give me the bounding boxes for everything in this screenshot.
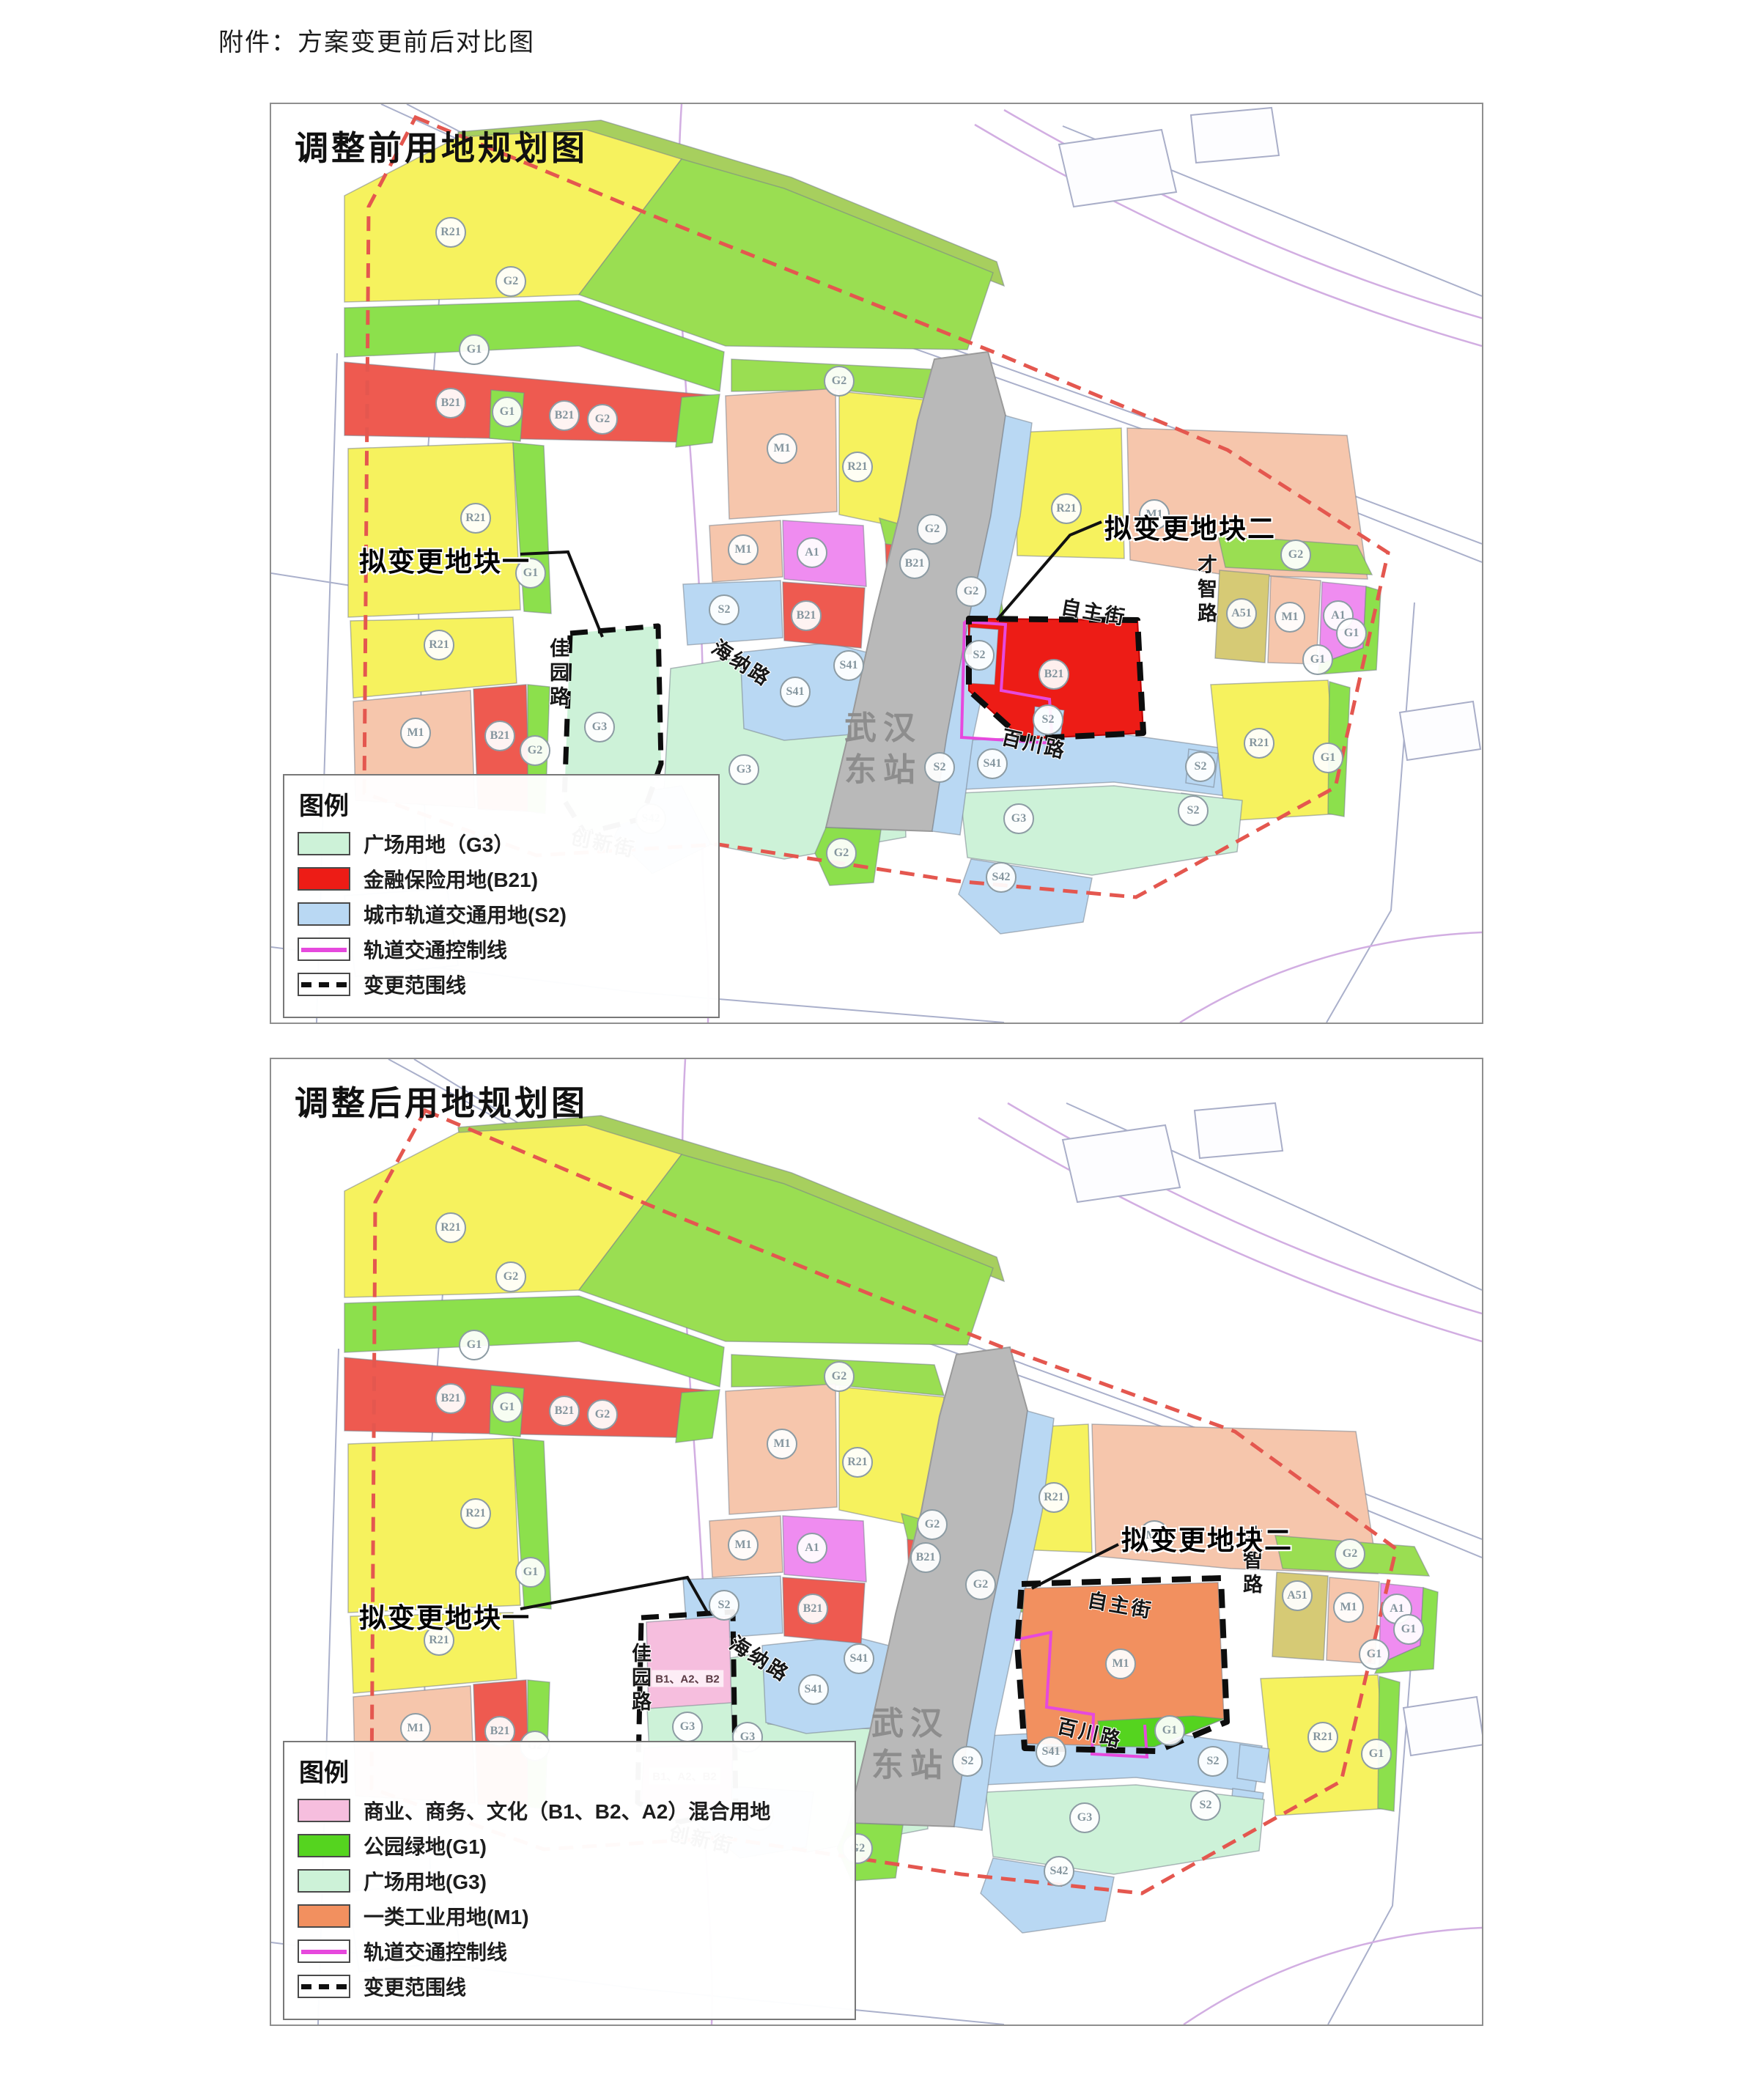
zone-label-S41: S41 — [833, 650, 864, 681]
zone-label-R21: R21 — [1038, 1482, 1069, 1513]
legend-item-label: 轨道交通控制线 — [364, 935, 507, 964]
zone-label-S2: S2 — [709, 594, 739, 625]
zone-label-B21: B21 — [797, 1594, 828, 1624]
zone-label-G2: G2 — [1335, 1539, 1365, 1569]
legend-item: 商业、商务、文化（B1、B2、A2）混合用地 — [298, 1796, 841, 1825]
zone-label-G1: G1 — [492, 397, 523, 427]
zone-label-M1: M1 — [767, 433, 797, 464]
zone-label-R21: R21 — [1307, 1722, 1338, 1753]
zone-label-B21: B21 — [910, 1542, 941, 1573]
zone-label-M1: M1 — [728, 1530, 759, 1561]
zone-label-G3: G3 — [672, 1712, 703, 1742]
zone-label-B21: B21 — [435, 388, 466, 419]
zone-label-G2: G2 — [587, 404, 618, 435]
zone-label-G2: G2 — [495, 1261, 526, 1292]
legend-swatch-fill — [298, 1834, 350, 1857]
zone-label-G2: G2 — [1280, 539, 1311, 570]
zone-label-B21: B21 — [549, 400, 580, 431]
zone-label-B21: B21 — [899, 548, 930, 579]
zone-label-S2: S2 — [709, 1590, 739, 1621]
zone-label-G2: G2 — [917, 514, 948, 545]
legend-item-label: 轨道交通控制线 — [364, 1937, 507, 1966]
map-after-title: 调整后用地规划图 — [295, 1077, 588, 1125]
legend-item: 广场用地（G3） — [298, 829, 705, 858]
callout-拟变更地块二: 拟变更地块二 — [1104, 506, 1276, 546]
zone-label-G1: G1 — [1336, 618, 1367, 649]
zone-label-G2: G2 — [826, 838, 857, 869]
zone-label-G1: G1 — [1393, 1614, 1424, 1645]
legend-item-label: 一类工业用地(M1) — [364, 1901, 529, 1931]
legend-swatch-dash — [298, 1975, 350, 1998]
legend-item-label: 城市轨道交通用地(S2) — [364, 899, 567, 929]
zone-label-A1: A1 — [797, 1533, 827, 1563]
zone-label-S41: S41 — [1036, 1736, 1066, 1767]
zone-label-G1: G1 — [1359, 1639, 1390, 1670]
road-label-佳园路: 佳园路 — [626, 1643, 654, 1715]
zone-label-S42: S42 — [1044, 1856, 1074, 1887]
zone-label-R21: R21 — [435, 1212, 466, 1243]
zone-label-G2: G2 — [824, 366, 855, 397]
zone-label-S42: S42 — [986, 862, 1017, 893]
zone-label-A51: A51 — [1282, 1580, 1313, 1611]
zone-label-G2: G2 — [917, 1509, 948, 1540]
zone-label-M1: M1 — [767, 1429, 797, 1459]
zone-label-G1: G1 — [459, 1330, 490, 1360]
zone-label-R21: R21 — [435, 217, 466, 248]
zone-label-S41: S41 — [977, 748, 1008, 779]
zone-label-B21: B21 — [435, 1383, 466, 1414]
zone-label-B21: B21 — [1038, 659, 1069, 690]
zone-label-A1: A1 — [797, 537, 827, 568]
zone-label-G2: G2 — [587, 1399, 618, 1430]
station-label: 武汉 东站 — [871, 1703, 949, 1786]
legend-items: 商业、商务、文化（B1、B2、A2）混合用地公园绿地(G1)广场用地(G3)一类… — [298, 1796, 841, 2001]
zone-label-R21: R21 — [1051, 493, 1082, 524]
legend-item: 变更范围线 — [298, 1972, 841, 2001]
mixed-use-tag-B1、A2、B2: B1、A2、B2 — [652, 1670, 723, 1687]
legend-item: 轨道交通控制线 — [298, 935, 705, 964]
legend-item-label: 金融保险用地(B21) — [364, 864, 538, 894]
zone-label-S41: S41 — [798, 1674, 829, 1705]
zone-label-G3: G3 — [584, 712, 615, 743]
zone-label-G1: G1 — [515, 1557, 546, 1588]
zone-label-S2: S2 — [924, 752, 955, 783]
zone-label-G2: G2 — [965, 1569, 996, 1600]
legend-item-label: 广场用地(G3) — [364, 1866, 487, 1895]
legend-item: 金融保险用地(B21) — [298, 864, 705, 894]
legend-title: 图例 — [299, 1753, 841, 1788]
zone-label-S2: S2 — [1185, 751, 1216, 782]
zone-label-G2: G2 — [495, 266, 526, 297]
legend-item-label: 变更范围线 — [364, 1972, 466, 2001]
zone-label-B21: B21 — [549, 1396, 580, 1426]
zone-label-R21: R21 — [842, 452, 873, 482]
legend-swatch-fill — [298, 1869, 350, 1893]
zone-label-R21: R21 — [460, 503, 491, 534]
legend-swatch-fill — [298, 902, 350, 926]
road-label-才智路: 才智路 — [1192, 554, 1220, 627]
legend-item: 城市轨道交通用地(S2) — [298, 899, 705, 929]
legend-item-label: 公园绿地(G1) — [364, 1831, 487, 1860]
legend-item: 广场用地(G3) — [298, 1866, 841, 1895]
map-before-title: 调整前用地规划图 — [295, 122, 588, 170]
legend-swatch-line — [298, 937, 350, 961]
zone-label-M1: M1 — [728, 534, 759, 565]
zone-label-G1: G1 — [459, 334, 490, 365]
zone-label-S2: S2 — [952, 1746, 983, 1777]
legend-swatch-line — [298, 1939, 350, 1963]
legend-swatch-dash — [298, 973, 350, 996]
station-label: 武汉 东站 — [844, 707, 922, 791]
zone-label-G1: G1 — [1154, 1715, 1185, 1746]
zone-label-G1: G1 — [492, 1392, 523, 1423]
legend-item: 变更范围线 — [298, 970, 705, 999]
zone-label-G3: G3 — [1069, 1802, 1100, 1833]
legend-before: 图例 广场用地（G3）金融保险用地(B21)城市轨道交通用地(S2)轨道交通控制… — [283, 774, 720, 1018]
zone-label-G1: G1 — [1313, 743, 1343, 773]
legend-swatch-fill — [298, 1904, 350, 1928]
zone-label-R21: R21 — [842, 1447, 873, 1478]
map-before: 调整前用地规划图 武汉 东站 R21G2G1B21G1B21G2R21G1R21… — [270, 103, 1483, 1024]
zone-label-M1: M1 — [400, 718, 431, 748]
callout-拟变更地块一: 拟变更地块一 — [359, 539, 531, 579]
callout-拟变更地块二: 拟变更地块二 — [1121, 1518, 1293, 1558]
road-label-佳园路: 佳园路 — [544, 638, 572, 710]
zone-label-S41: S41 — [844, 1643, 874, 1674]
zone-label-S2: S2 — [1178, 795, 1209, 826]
zone-label-S2: S2 — [1190, 1790, 1221, 1821]
legend-item: 一类工业用地(M1) — [298, 1901, 841, 1931]
legend-swatch-fill — [298, 867, 350, 891]
legend-item-label: 广场用地（G3） — [364, 829, 514, 858]
legend-items: 广场用地（G3）金融保险用地(B21)城市轨道交通用地(S2)轨道交通控制线变更… — [298, 829, 705, 999]
zone-label-G2: G2 — [824, 1361, 855, 1392]
legend-item-label: 变更范围线 — [364, 970, 466, 999]
zone-label-B21: B21 — [484, 721, 515, 751]
zone-label-M1: M1 — [1274, 602, 1305, 633]
legend-item-label: 商业、商务、文化（B1、B2、A2）混合用地 — [364, 1796, 770, 1825]
zone-label-S2: S2 — [1198, 1746, 1228, 1777]
zone-label-G2: G2 — [956, 576, 986, 607]
legend-item: 轨道交通控制线 — [298, 1937, 841, 1966]
zone-label-R21: R21 — [460, 1498, 491, 1529]
map-after: 调整后用地规划图 武汉 东站 R21G2G1B21G1B21G2R21G1R21… — [270, 1058, 1483, 2026]
zone-label-G1: G1 — [1302, 644, 1333, 675]
legend-after: 图例 商业、商务、文化（B1、B2、A2）混合用地公园绿地(G1)广场用地(G3… — [283, 1741, 856, 2020]
zone-label-M1: M1 — [400, 1713, 431, 1744]
zone-label-M1: M1 — [1333, 1592, 1364, 1623]
zone-label-R21: R21 — [424, 630, 454, 660]
zone-label-G3: G3 — [1003, 803, 1034, 834]
legend-swatch-fill — [298, 832, 350, 855]
legend-title: 图例 — [299, 786, 705, 822]
zone-label-G3: G3 — [728, 754, 759, 785]
zone-label-S41: S41 — [780, 677, 811, 707]
zone-label-G1: G1 — [1361, 1739, 1392, 1769]
zone-label-M1: M1 — [1105, 1648, 1136, 1679]
zone-label-B21: B21 — [791, 600, 822, 631]
legend-item: 公园绿地(G1) — [298, 1831, 841, 1860]
callout-拟变更地块一: 拟变更地块一 — [359, 1596, 531, 1635]
document-page: 附件：方案变更前后对比图 — [0, 0, 1745, 2100]
zone-label-R21: R21 — [1244, 728, 1274, 759]
zone-label-G2: G2 — [520, 735, 550, 766]
zone-label-S2: S2 — [964, 640, 995, 671]
zone-label-A51: A51 — [1226, 598, 1257, 629]
document-heading: 附件：方案变更前后对比图 — [218, 22, 535, 58]
legend-swatch-fill — [298, 1799, 350, 1822]
